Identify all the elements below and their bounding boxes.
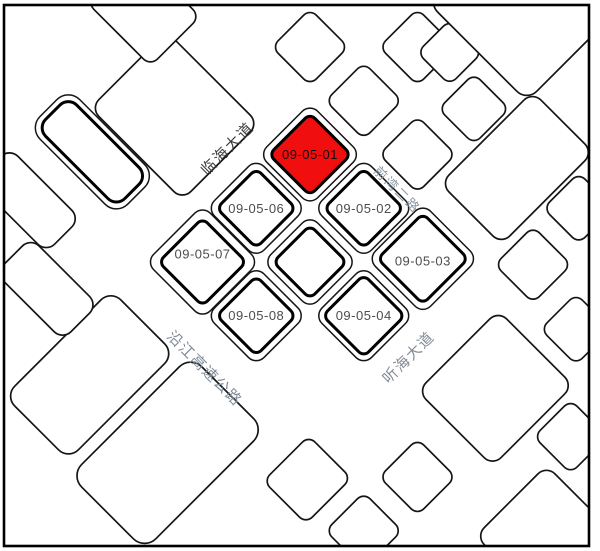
parcel-label-09-05-03: 09-05-03 — [395, 253, 451, 268]
city-block — [263, 436, 351, 524]
city-block — [272, 9, 348, 85]
parcel-label-09-05-06: 09-05-06 — [228, 201, 284, 216]
city-block — [326, 493, 402, 551]
parcel-fill — [273, 225, 347, 299]
rotated-street-grid — [0, 0, 600, 551]
city-block — [476, 465, 600, 551]
parcel-label-09-05-01: 09-05-01 — [282, 147, 338, 162]
parcel-map: 09-05-0109-05-0209-05-0309-05-0409-05-06… — [0, 0, 600, 551]
city-block — [326, 63, 402, 139]
parcel-label-09-05-07: 09-05-07 — [174, 247, 230, 262]
parcel-label-09-05-04: 09-05-04 — [336, 308, 392, 323]
city-block — [541, 294, 600, 365]
parcel-label-09-05-08: 09-05-08 — [228, 308, 284, 323]
parcel-label-09-05-02: 09-05-02 — [336, 201, 392, 216]
map-canvas: 09-05-0109-05-0209-05-0309-05-0409-05-06… — [0, 0, 600, 551]
map-clip-group — [0, 0, 600, 551]
city-block — [379, 439, 455, 515]
